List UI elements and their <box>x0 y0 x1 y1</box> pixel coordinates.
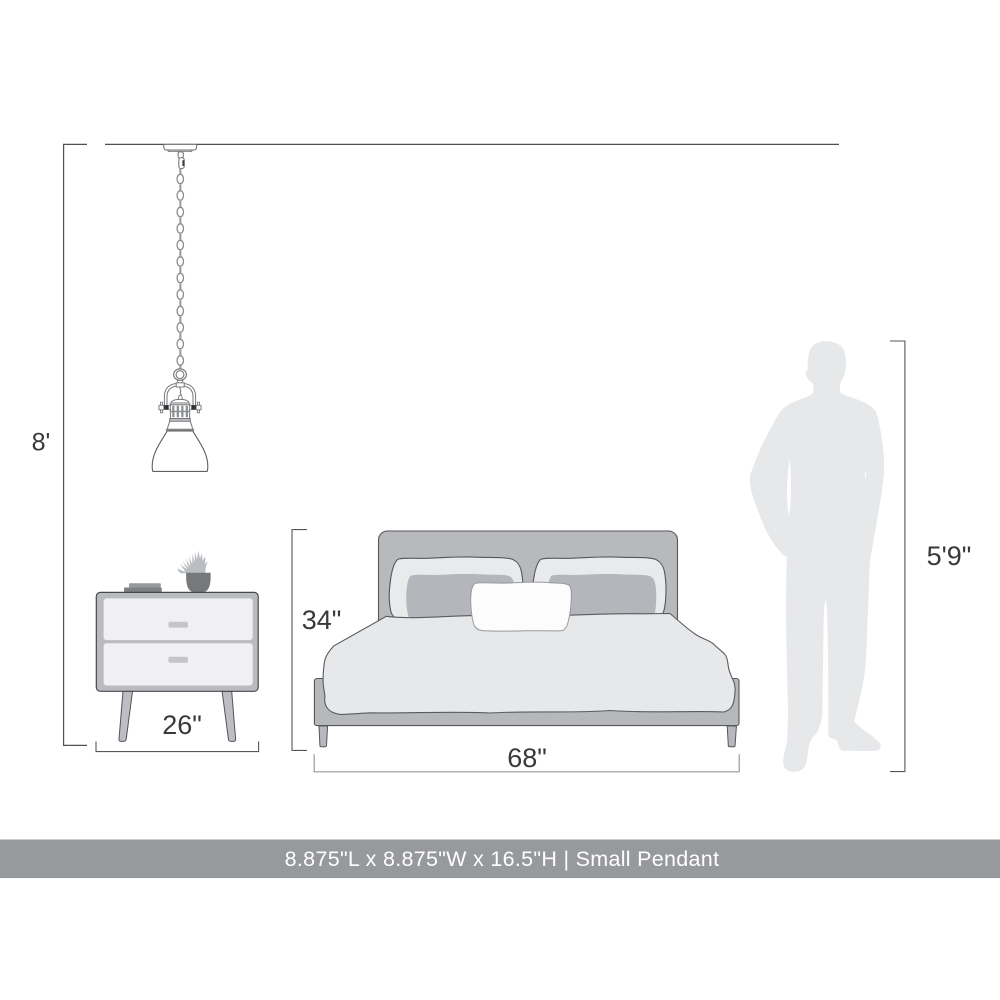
svg-text:68": 68" <box>507 743 547 773</box>
svg-text:34": 34" <box>302 605 342 635</box>
svg-text:8': 8' <box>32 429 51 457</box>
svg-text:26": 26" <box>162 710 202 740</box>
svg-text:5'9": 5'9" <box>927 541 972 571</box>
svg-text:8.875"L x 8.875"W x 16.5"H | S: 8.875"L x 8.875"W x 16.5"H | Small Penda… <box>285 847 720 871</box>
